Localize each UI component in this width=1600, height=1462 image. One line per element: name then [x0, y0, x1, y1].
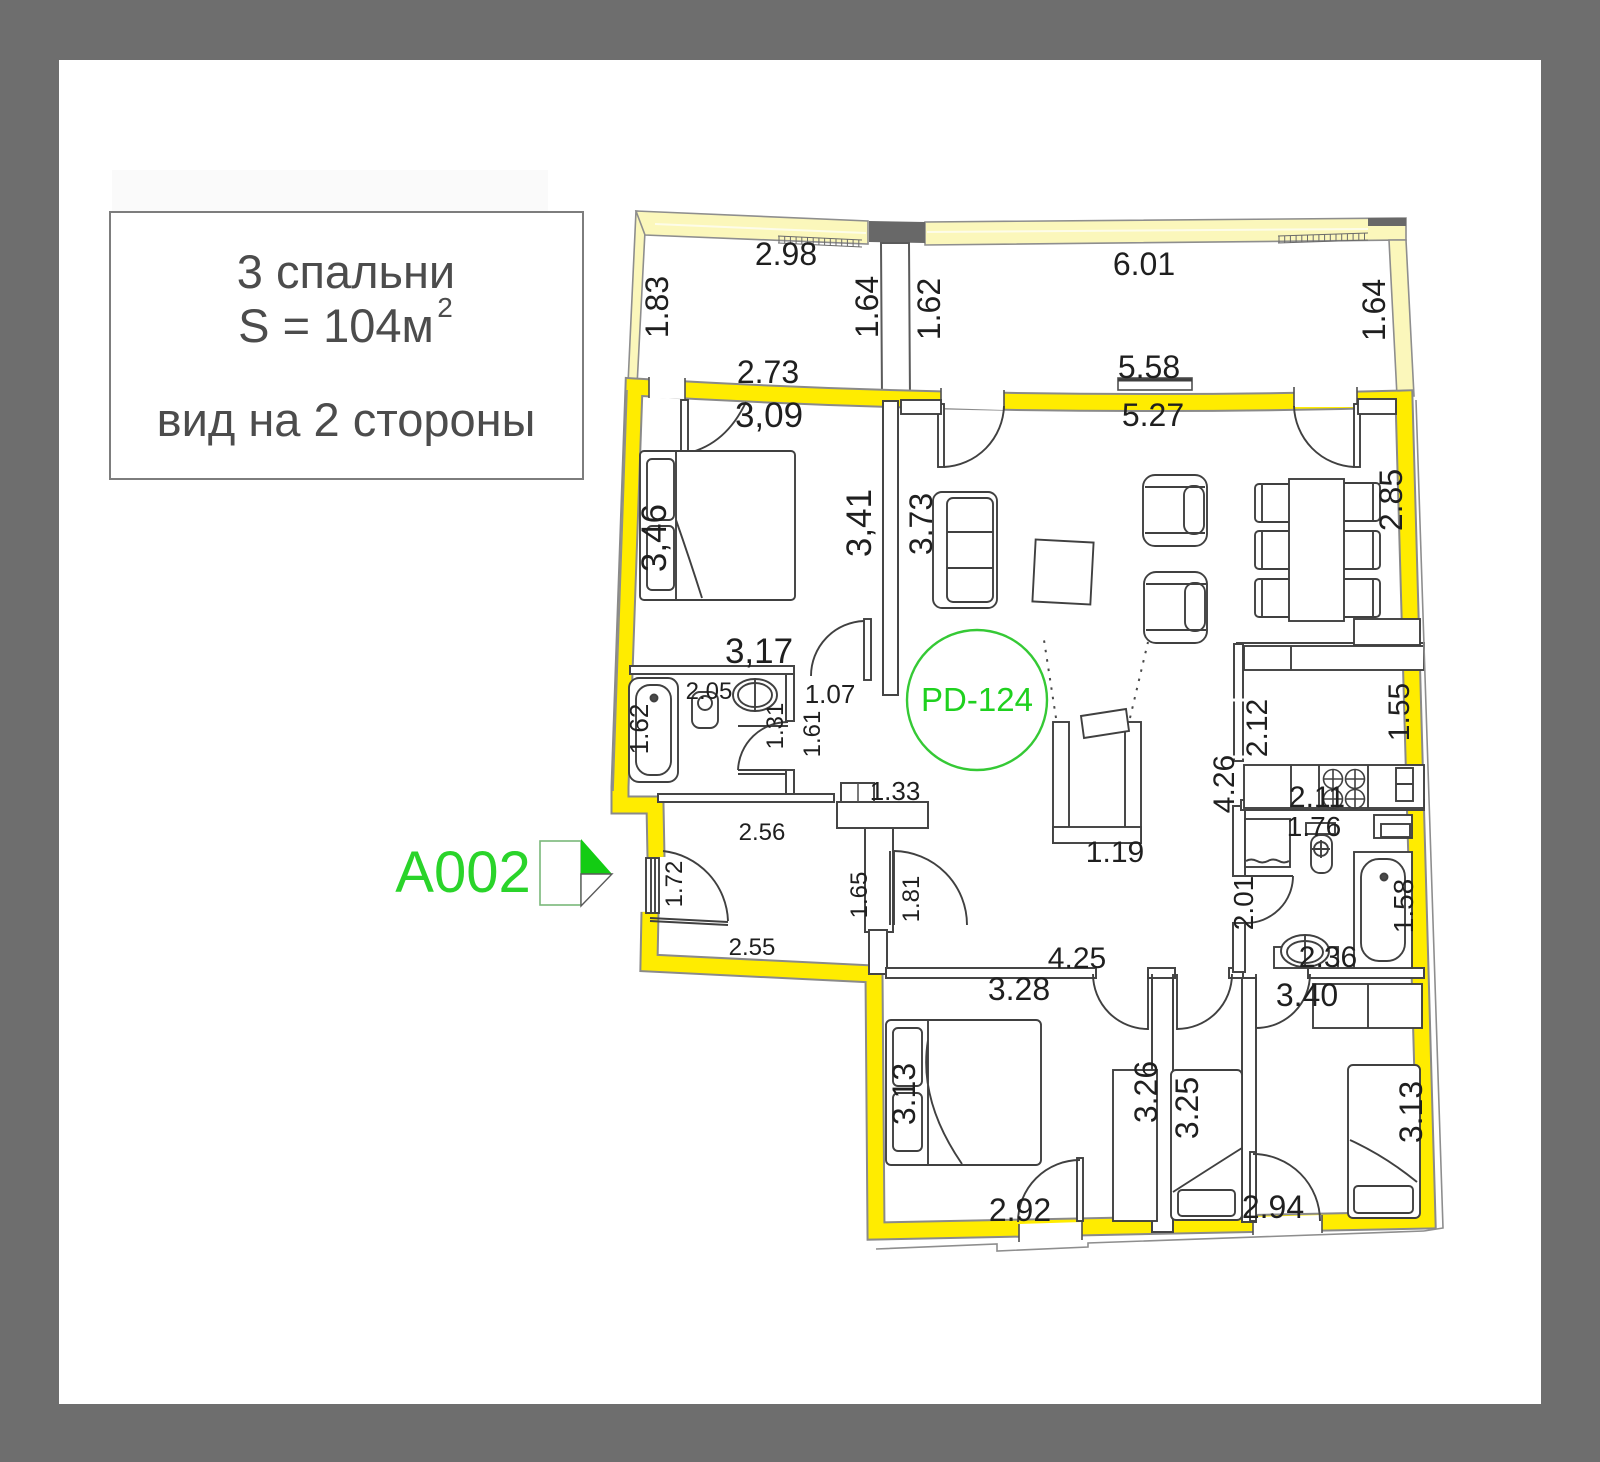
svg-text:4.25: 4.25 — [1048, 942, 1106, 975]
svg-text:2.73: 2.73 — [737, 354, 799, 390]
svg-text:1.83: 1.83 — [639, 276, 675, 338]
svg-text:1.64: 1.64 — [849, 276, 885, 338]
svg-text:3,41: 3,41 — [840, 489, 879, 557]
svg-text:4.26: 4.26 — [1208, 755, 1241, 813]
svg-text:2.01: 2.01 — [1228, 876, 1259, 931]
svg-text:2.11: 2.11 — [1289, 781, 1345, 814]
svg-text:3.40: 3.40 — [1276, 977, 1338, 1013]
svg-text:1.81: 1.81 — [898, 876, 925, 923]
svg-text:5.58: 5.58 — [1118, 349, 1180, 385]
svg-text:3 спальни: 3 спальни — [237, 245, 455, 298]
svg-text:2.55: 2.55 — [729, 934, 776, 961]
svg-text:6.01: 6.01 — [1113, 246, 1175, 282]
svg-text:2.98: 2.98 — [755, 236, 817, 272]
svg-text:2.94: 2.94 — [1242, 1189, 1304, 1225]
svg-text:1.61: 1.61 — [799, 711, 826, 758]
svg-text:3.25: 3.25 — [1169, 1077, 1205, 1139]
svg-text:3.28: 3.28 — [988, 971, 1050, 1007]
svg-text:3.26: 3.26 — [1128, 1061, 1164, 1123]
svg-text:3,09: 3,09 — [735, 396, 803, 435]
svg-text:3.13: 3.13 — [1393, 1081, 1429, 1143]
svg-text:3,46: 3,46 — [635, 504, 674, 572]
svg-text:2.92: 2.92 — [989, 1192, 1051, 1228]
svg-text:1.19: 1.19 — [1086, 836, 1144, 869]
svg-text:2.12: 2.12 — [1241, 699, 1274, 757]
svg-text:PD-124: PD-124 — [921, 681, 1033, 718]
svg-text:1.33: 1.33 — [870, 776, 921, 806]
svg-text:1.62: 1.62 — [911, 278, 947, 340]
svg-text:1.72: 1.72 — [661, 861, 688, 908]
svg-text:2.05: 2.05 — [686, 678, 733, 705]
svg-text:1.31: 1.31 — [762, 703, 789, 750]
svg-text:1.58: 1.58 — [1388, 879, 1419, 934]
svg-text:1.76: 1.76 — [1287, 811, 1342, 842]
svg-text:1.07: 1.07 — [805, 679, 856, 709]
svg-text:1.55: 1.55 — [1383, 683, 1416, 741]
svg-text:1.65: 1.65 — [846, 872, 873, 919]
svg-text:2.56: 2.56 — [739, 819, 786, 846]
svg-text:2.36: 2.36 — [1299, 941, 1357, 974]
svg-text:S = 104м: S = 104м — [238, 299, 434, 352]
svg-text:вид на 2 стороны: вид на 2 стороны — [157, 393, 536, 446]
svg-text:2.85: 2.85 — [1373, 469, 1409, 531]
svg-text:1.62: 1.62 — [624, 704, 654, 755]
svg-text:2: 2 — [437, 292, 453, 323]
svg-text:1.64: 1.64 — [1356, 279, 1392, 341]
svg-text:A002: A002 — [395, 840, 530, 905]
svg-text:3,17: 3,17 — [725, 632, 793, 671]
svg-text:3.73: 3.73 — [903, 493, 939, 555]
svg-text:5.27: 5.27 — [1122, 397, 1184, 433]
svg-text:3.13: 3.13 — [886, 1063, 922, 1125]
